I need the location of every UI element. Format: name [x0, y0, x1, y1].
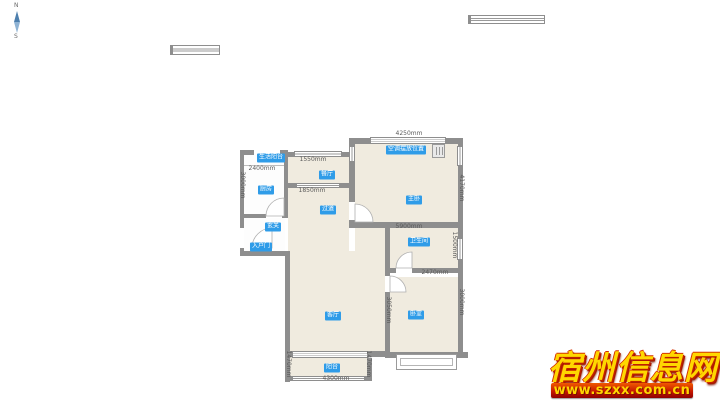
dimension: 2400mm: [249, 166, 276, 172]
dimension: 4250mm: [396, 131, 423, 137]
dimension: 4300mm: [323, 376, 350, 382]
dimension: 2470mm: [422, 270, 449, 276]
dimension: 4170mm: [458, 175, 464, 202]
master-door-opening: [349, 202, 355, 220]
kitchen-door-opening: [266, 214, 282, 218]
room-label-service-balcony: 生活阳台: [257, 154, 285, 163]
watermark-url-banner: www.szxx.com.cn: [551, 383, 693, 398]
label-entry-door: 入户门: [250, 243, 272, 252]
room-label-bedroom: 卧室: [408, 311, 424, 320]
kitchen-floor: [244, 155, 284, 214]
dimension: 1550mm: [300, 157, 327, 163]
entry-door-opening: [240, 228, 244, 248]
room-label-bathroom: 卫生间: [408, 238, 430, 247]
watermark-site-url: www.szxx.com.cn: [554, 383, 691, 398]
window-icon: [457, 146, 463, 166]
dimension: 3000mm: [239, 172, 245, 199]
floor-plan-page: { "compass": { "north_label": "N", "sout…: [0, 0, 720, 405]
dimension: 1470mm: [365, 351, 371, 378]
bathroom-floor: [390, 228, 458, 268]
dimension: 3000mm: [458, 289, 464, 316]
compass-needle-north-icon: [14, 11, 20, 22]
hallway-floor: [288, 188, 349, 251]
label-ac-position: 空调摆放位置: [386, 146, 426, 155]
room-label-master-bedroom: 主卧: [406, 196, 422, 205]
bedroom-door-opening: [385, 276, 390, 292]
compass-north-label: N: [14, 3, 19, 9]
room-label-kitchen: 厨房: [258, 186, 274, 195]
bathroom-door-opening: [396, 268, 412, 273]
bay-window-icon: [396, 354, 457, 370]
detached-window-cap: [468, 15, 471, 24]
room-label-balcony: 阳台: [324, 364, 340, 373]
watermark-site-name: 宿州信息网: [548, 351, 718, 384]
detached-window-icon: [172, 45, 220, 55]
wall: [385, 228, 390, 268]
dimension: 1850mm: [299, 188, 326, 194]
compass-needle-south-icon: [14, 22, 20, 33]
label-foyer: 玄关: [265, 223, 281, 232]
dimension: 5900mm: [396, 224, 423, 230]
hall-right-floor: [355, 228, 385, 272]
room-label-hallway: 过道: [320, 206, 336, 215]
sliding-door-icon: [292, 351, 368, 358]
window-icon: [370, 137, 446, 144]
window-icon: [349, 146, 355, 162]
room-label-living: 客厅: [325, 312, 341, 321]
dimension: 3050mm: [385, 297, 391, 324]
air-conditioner-icon: [432, 144, 445, 158]
room-label-dining: 餐厅: [319, 171, 335, 180]
dimension: 1500mm: [451, 232, 457, 259]
wall: [240, 251, 290, 256]
dimension: 1470mm: [285, 351, 291, 378]
detached-window-icon: [470, 15, 545, 24]
wall: [285, 251, 290, 352]
compass-south-label: S: [14, 34, 18, 40]
detached-window-cap: [170, 45, 173, 55]
